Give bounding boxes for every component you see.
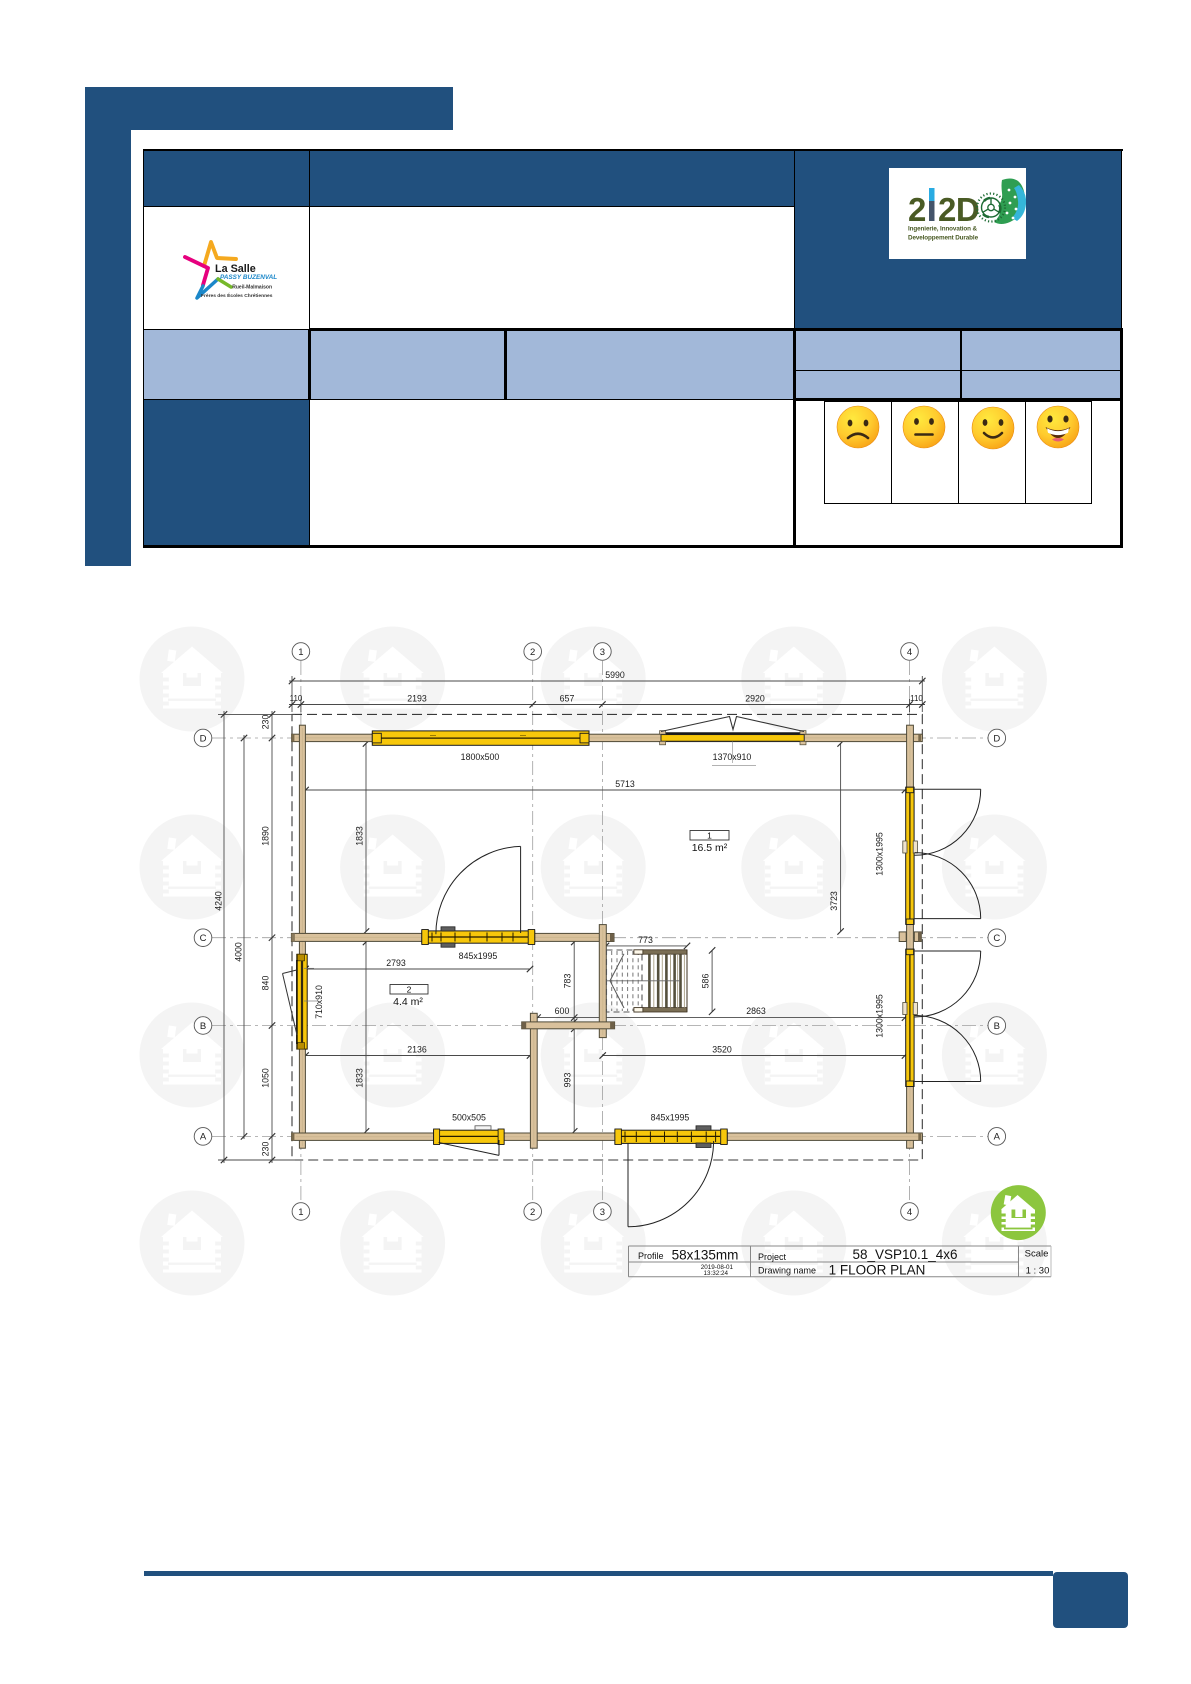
svg-text:600: 600 <box>555 1006 570 1016</box>
svg-text:Drawing name: Drawing name <box>758 1266 816 1276</box>
svg-text:A: A <box>200 1132 207 1143</box>
svg-text:845x1995: 845x1995 <box>651 1113 690 1123</box>
svg-text:1 : 30: 1 : 30 <box>1026 1266 1050 1277</box>
svg-text:2: 2 <box>407 984 412 994</box>
svg-text:3723: 3723 <box>829 891 839 911</box>
svg-text:2863: 2863 <box>746 1006 766 1016</box>
svg-text:1 FLOOR PLAN: 1 FLOOR PLAN <box>829 1263 926 1278</box>
svg-text:230: 230 <box>261 1142 271 1157</box>
svg-text:2193: 2193 <box>407 694 427 704</box>
svg-text:2: 2 <box>530 1207 535 1218</box>
svg-text:586: 586 <box>701 974 711 989</box>
svg-text:4.4 m²: 4.4 m² <box>393 996 423 1008</box>
svg-text:B: B <box>200 1021 206 1032</box>
svg-text:710x910: 710x910 <box>314 985 324 1019</box>
svg-text:1833: 1833 <box>355 1068 365 1088</box>
svg-text:Project: Project <box>758 1252 787 1262</box>
svg-text:4: 4 <box>907 1207 912 1218</box>
svg-text:230: 230 <box>261 715 271 730</box>
svg-text:Scale: Scale <box>1025 1249 1049 1260</box>
svg-text:1: 1 <box>298 647 303 658</box>
svg-text:3: 3 <box>600 1207 605 1218</box>
svg-text:2793: 2793 <box>386 958 406 968</box>
svg-text:1300x1995: 1300x1995 <box>875 832 885 876</box>
svg-text:A: A <box>994 1132 1001 1143</box>
svg-text:58_VSP10.1_4x6: 58_VSP10.1_4x6 <box>852 1247 957 1262</box>
svg-text:4: 4 <box>907 647 912 658</box>
svg-text:2136: 2136 <box>407 1045 427 1055</box>
svg-text:1800x500: 1800x500 <box>461 752 500 762</box>
svg-text:1300x1995: 1300x1995 <box>875 994 885 1038</box>
svg-text:C: C <box>993 933 1000 944</box>
svg-text:16.5 m²: 16.5 m² <box>692 842 728 854</box>
svg-text:1: 1 <box>298 1207 303 1218</box>
svg-text:845x1995: 845x1995 <box>459 951 498 961</box>
svg-text:3: 3 <box>600 647 605 658</box>
svg-text:993: 993 <box>563 1073 573 1088</box>
svg-text:3520: 3520 <box>712 1045 732 1055</box>
svg-text:D: D <box>993 733 1000 744</box>
svg-text:110: 110 <box>910 694 923 703</box>
svg-text:657: 657 <box>560 694 575 704</box>
svg-text:4240: 4240 <box>214 891 224 911</box>
svg-text:1: 1 <box>707 830 712 840</box>
svg-text:2: 2 <box>530 647 535 658</box>
svg-text:840: 840 <box>261 976 271 991</box>
svg-text:13:32:24: 13:32:24 <box>703 1270 728 1277</box>
svg-text:773: 773 <box>638 935 653 945</box>
svg-text:1890: 1890 <box>261 826 271 846</box>
svg-text:Profile: Profile <box>638 1251 664 1261</box>
svg-text:4000: 4000 <box>234 942 244 962</box>
svg-text:5713: 5713 <box>615 779 635 789</box>
svg-text:58x135mm: 58x135mm <box>672 1248 739 1263</box>
svg-text:D: D <box>200 733 207 744</box>
svg-text:1050: 1050 <box>261 1068 271 1088</box>
svg-text:110: 110 <box>290 694 303 703</box>
svg-text:1370x910: 1370x910 <box>713 752 752 762</box>
svg-text:783: 783 <box>563 974 573 989</box>
svg-text:C: C <box>200 933 207 944</box>
svg-text:B: B <box>994 1021 1000 1032</box>
svg-text:1833: 1833 <box>355 826 365 846</box>
svg-text:5990: 5990 <box>605 670 625 680</box>
svg-text:500x505: 500x505 <box>452 1113 486 1123</box>
svg-text:2920: 2920 <box>745 694 765 704</box>
